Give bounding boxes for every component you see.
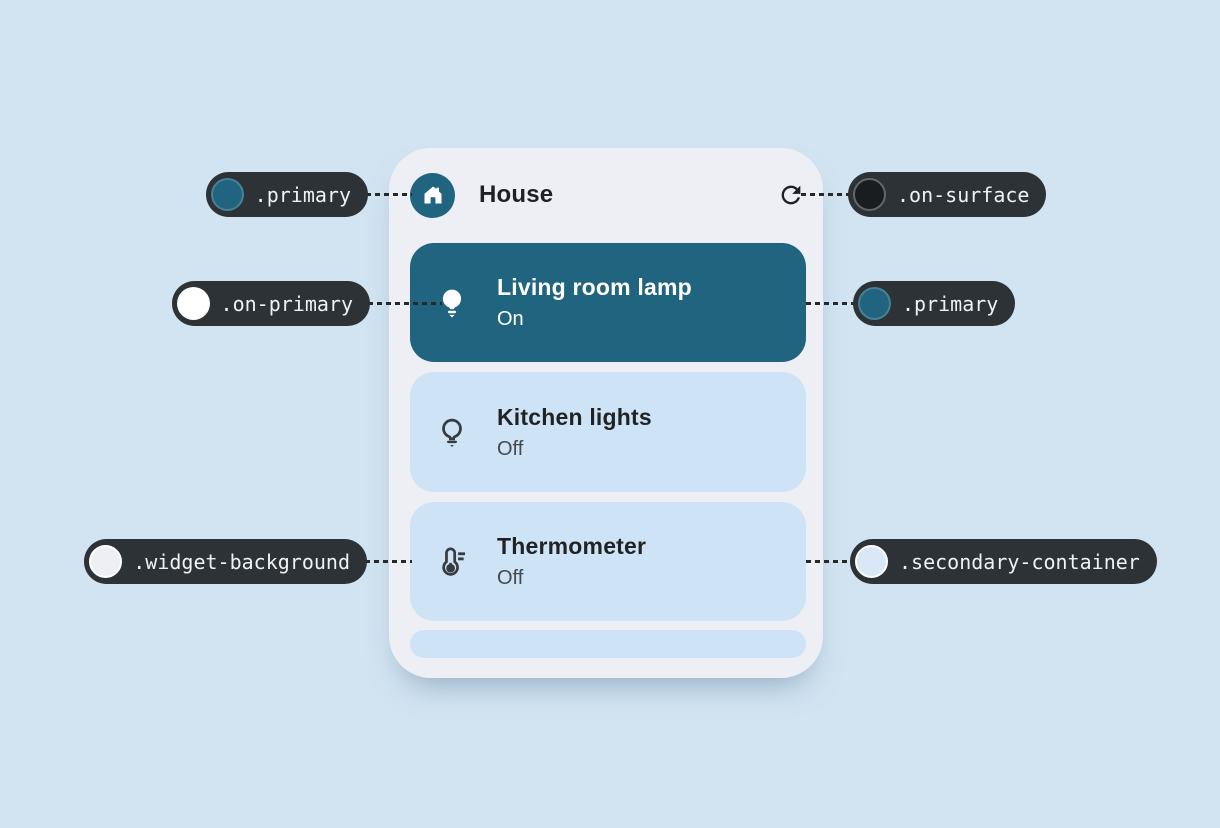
connector-line: [365, 560, 412, 563]
color-swatch: [177, 287, 210, 320]
callout-label: .secondary-container: [899, 550, 1140, 574]
callout-on-primary: .on-primary: [172, 281, 370, 326]
color-swatch: [858, 287, 891, 320]
widget-header: House: [410, 172, 806, 218]
callout-secondary-container: .secondary-container: [850, 539, 1157, 584]
color-swatch: [89, 545, 122, 578]
callout-label: .widget-background: [133, 550, 350, 574]
callout-primary-header: .primary: [206, 172, 368, 217]
device-status: On: [497, 308, 692, 331]
clipped-device-stub: [410, 630, 806, 658]
device-text: Thermometer Off: [497, 533, 646, 590]
thermometer-icon: [434, 542, 470, 582]
connector-line: [801, 193, 850, 196]
connector-line: [366, 193, 412, 196]
device-card-living-room-lamp[interactable]: Living room lamp On: [410, 243, 806, 362]
home-widget: House Living room lamp On: [389, 148, 823, 678]
color-swatch: [855, 545, 888, 578]
home-icon: [410, 173, 455, 218]
device-name: Kitchen lights: [497, 404, 652, 431]
callout-label: .primary: [902, 292, 998, 316]
device-card-kitchen-lights[interactable]: Kitchen lights Off: [410, 372, 806, 492]
device-status: Off: [497, 567, 646, 590]
color-swatch: [211, 178, 244, 211]
connector-line: [368, 302, 442, 305]
connector-line: [806, 560, 852, 563]
connector-line: [806, 302, 855, 305]
device-card-thermometer[interactable]: Thermometer Off: [410, 502, 806, 621]
device-text: Kitchen lights Off: [497, 404, 652, 461]
callout-primary-card: .primary: [853, 281, 1015, 326]
device-status: Off: [497, 438, 652, 461]
color-swatch: [853, 178, 886, 211]
callout-label: .on-primary: [221, 292, 353, 316]
figure-canvas: House Living room lamp On: [0, 0, 1220, 828]
callout-on-surface: .on-surface: [848, 172, 1046, 217]
callout-label: .primary: [255, 183, 351, 207]
device-name: Living room lamp: [497, 274, 692, 301]
callout-widget-background: .widget-background: [84, 539, 367, 584]
device-name: Thermometer: [497, 533, 646, 560]
callout-label: .on-surface: [897, 183, 1029, 207]
widget-title: House: [479, 181, 553, 209]
device-text: Living room lamp On: [497, 274, 692, 331]
lamp-off-icon: [434, 412, 470, 452]
